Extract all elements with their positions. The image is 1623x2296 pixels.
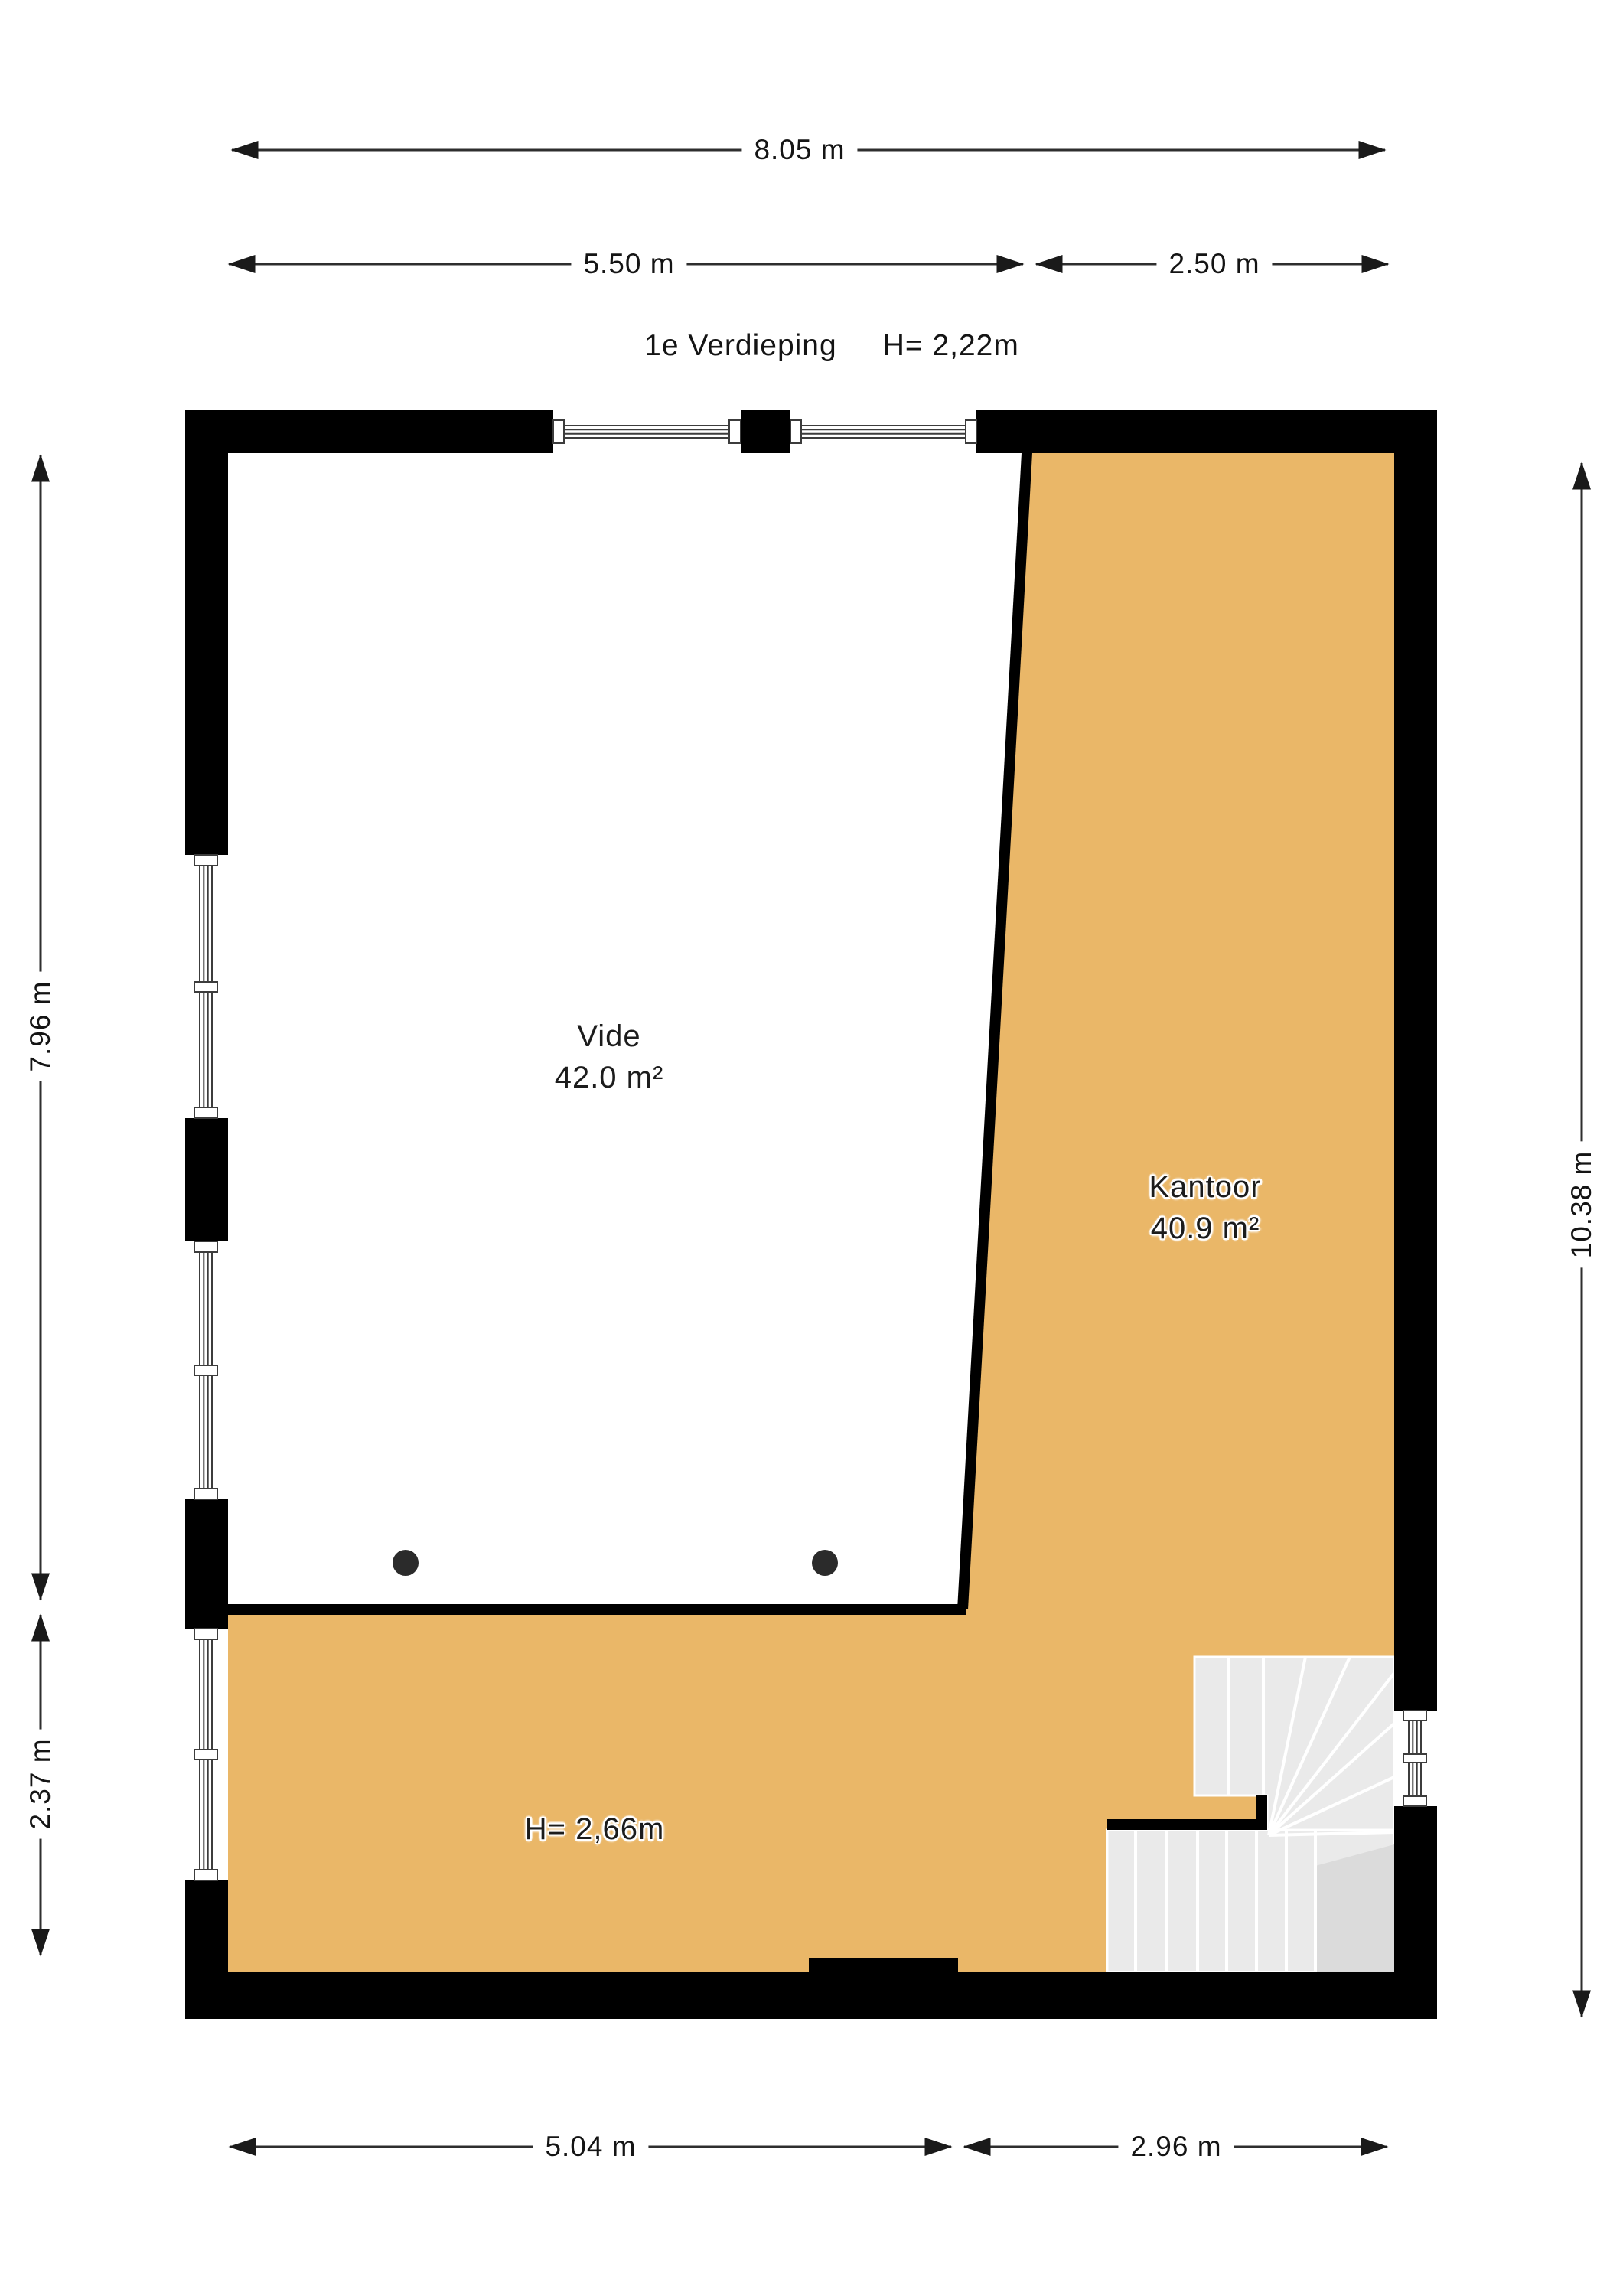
room-area-kantoor: 40.9 m² — [1149, 1208, 1261, 1249]
lower-height-annotation: H= 2,66m — [525, 1808, 665, 1850]
dim-left-lower-label: 2.37 m — [23, 1729, 58, 1838]
dim-left-upper-label: 7.96 m — [23, 971, 58, 1081]
wall-vide-bottom — [228, 1604, 966, 1615]
column-dot-left — [393, 1550, 419, 1576]
room-area-vide: 42.0 m² — [555, 1057, 664, 1098]
dim-top-right-label: 2.50 m — [1156, 246, 1272, 282]
window-symbol-left-3 — [185, 1629, 228, 1880]
dim-top-total-label: 8.05 m — [741, 132, 857, 168]
window-symbol-left-1 — [185, 855, 228, 1118]
plan-title-height: H= 2,22m — [883, 329, 1019, 363]
room-name-vide: Vide — [555, 1016, 664, 1057]
window-symbol-right — [1394, 1711, 1437, 1806]
plan-title: 1e Verdieping H= 2,22m — [644, 329, 1019, 363]
dim-bottom-left-label: 5.04 m — [533, 2129, 648, 2164]
dim-right-total-label: 10.38 m — [1564, 1142, 1599, 1268]
column-dot-right — [812, 1550, 838, 1576]
wall-stair-stub — [1256, 1795, 1267, 1830]
window-symbol-top-1 — [553, 410, 741, 453]
window-symbol-left-2 — [185, 1241, 228, 1499]
dim-top-left-label: 5.50 m — [571, 246, 686, 282]
wall-stair-side — [1107, 1819, 1267, 1830]
wall-bottom-notch — [809, 1958, 958, 1972]
room-label-kantoor: Kantoor 40.9 m² — [1149, 1166, 1261, 1249]
window-symbol-top-2 — [790, 410, 976, 453]
room-name-kantoor: Kantoor — [1149, 1166, 1261, 1208]
plan-title-floor: 1e Verdieping — [644, 329, 837, 363]
room-label-vide: Vide 42.0 m² — [555, 1016, 664, 1098]
stairs-landing — [1315, 1844, 1394, 1972]
dim-bottom-right-label: 2.96 m — [1118, 2129, 1234, 2164]
wall-bottom — [185, 1972, 1437, 2019]
floorplan-page: 8.05 m 5.50 m 2.50 m 1e Verdieping H= 2,… — [0, 0, 1623, 2296]
